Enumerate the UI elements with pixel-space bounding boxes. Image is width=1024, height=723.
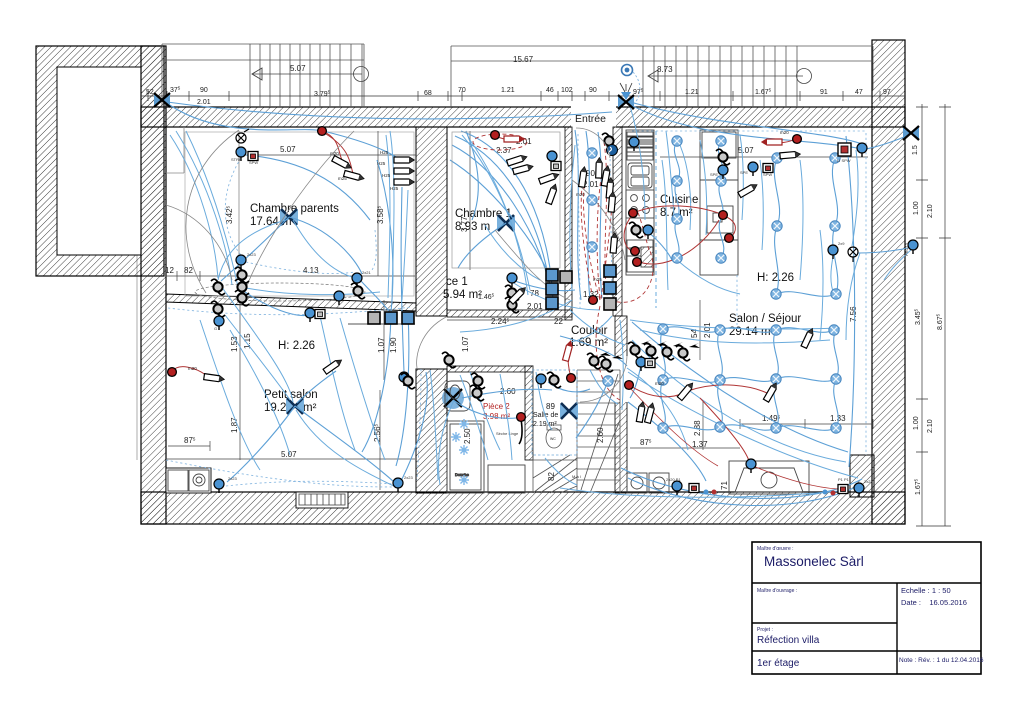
svg-text:2.10: 2.10 <box>927 204 934 218</box>
svg-text:2x23: 2x23 <box>247 252 256 257</box>
svg-text:7.56: 7.56 <box>849 306 858 322</box>
svg-text:m²: m² <box>303 402 317 414</box>
svg-text:G: G <box>214 326 217 331</box>
svg-text:Maître d'œuvre :: Maître d'œuvre : <box>757 546 794 552</box>
svg-text:ce 1: ce 1 <box>446 276 468 288</box>
svg-text:2.01: 2.01 <box>703 322 712 338</box>
svg-text:2x20 P1: 2x20 P1 <box>666 477 681 482</box>
svg-text:m20: m20 <box>330 151 339 156</box>
svg-text:1.00: 1.00 <box>913 201 920 215</box>
svg-text:H25: H25 <box>390 186 399 191</box>
svg-text:90: 90 <box>589 87 597 94</box>
svg-text:19.2: 19.2 <box>264 402 286 414</box>
svg-text:52: 52 <box>146 89 154 96</box>
svg-text:70: 70 <box>458 87 466 94</box>
svg-text:102: 102 <box>561 87 573 94</box>
svg-text:97: 97 <box>883 89 891 96</box>
svg-text:5.94 m²: 5.94 m² <box>443 289 482 301</box>
svg-text:47: 47 <box>855 89 863 96</box>
svg-text:1.21: 1.21 <box>685 89 699 96</box>
svg-text:90: 90 <box>200 87 208 94</box>
svg-text:1.21: 1.21 <box>501 87 515 94</box>
svg-text:1.07: 1.07 <box>377 337 386 353</box>
svg-text:2x9: 2x9 <box>838 241 845 246</box>
svg-text:m25: m25 <box>338 176 347 181</box>
svg-text:91: 91 <box>820 89 828 96</box>
svg-text:12: 12 <box>165 266 174 275</box>
svg-text:1.5: 1.5 <box>912 145 919 155</box>
svg-text:2.19 m²: 2.19 m² <box>533 421 557 428</box>
svg-text:2.60: 2.60 <box>596 427 605 443</box>
svg-text:H: 2.26: H: 2.26 <box>757 272 794 284</box>
svg-text:Sèche Linge: Sèche Linge <box>496 431 519 436</box>
svg-text:Douche: Douche <box>455 472 470 477</box>
svg-text:WC: WC <box>550 437 556 441</box>
svg-text:89: 89 <box>546 402 555 411</box>
svg-text:46: 46 <box>546 87 554 94</box>
svg-text:LI SPW: LI SPW <box>837 158 851 163</box>
svg-text:2x21: 2x21 <box>362 270 371 275</box>
svg-text:2.01: 2.01 <box>527 302 543 311</box>
svg-text:2x23: 2x23 <box>228 476 237 481</box>
svg-text:m25: m25 <box>593 277 602 282</box>
svg-text:M à l: M à l <box>572 474 581 479</box>
svg-text:Salon / Séjour: Salon / Séjour <box>729 313 801 325</box>
svg-text:3.77: 3.77 <box>460 216 469 232</box>
svg-text:Date : 16.05.2016: Date : 16.05.2016 <box>901 598 967 607</box>
svg-text:5.07: 5.07 <box>280 145 296 154</box>
svg-text:m20: m20 <box>655 381 664 386</box>
svg-text:Echelle : 1 : 50: Echelle : 1 : 50 <box>901 586 951 595</box>
svg-text:1.69 m²: 1.69 m² <box>569 337 608 349</box>
svg-text:4.13: 4.13 <box>303 266 319 275</box>
svg-text:H25: H25 <box>382 173 391 178</box>
svg-text:1er étage: 1er étage <box>757 658 800 669</box>
svg-text:82: 82 <box>547 472 556 481</box>
svg-text:PRC13: PRC13 <box>904 242 909 256</box>
svg-text:H25: H25 <box>380 150 389 155</box>
svg-text:8.73: 8.73 <box>657 65 673 74</box>
svg-text:1.00: 1.00 <box>913 416 920 430</box>
svg-text:1.15: 1.15 <box>243 333 252 349</box>
svg-text:5.07: 5.07 <box>738 146 754 155</box>
svg-text:68: 68 <box>424 90 432 97</box>
svg-text:2.50: 2.50 <box>463 428 472 444</box>
svg-text:Salle de b: Salle de b <box>533 412 564 419</box>
svg-text:H25: H25 <box>377 161 386 166</box>
svg-text:Note : Rév. : 1 du 12.04.2016: Note : Rév. : 1 du 12.04.2016 <box>899 657 984 664</box>
svg-text:SPW: SPW <box>763 172 772 177</box>
svg-text:Entrée: Entrée <box>575 113 606 125</box>
svg-text:Massonelec Sàrl: Massonelec Sàrl <box>764 554 864 569</box>
svg-text:1.90: 1.90 <box>389 337 398 353</box>
svg-text:2x23: 2x23 <box>864 479 873 484</box>
svg-text:SPE: SPE <box>740 170 748 175</box>
svg-text:Maître d'ouvrage :: Maître d'ouvrage : <box>757 588 797 594</box>
svg-text:STRE: STRE <box>231 157 242 162</box>
svg-text:SPE: SPE <box>710 172 718 177</box>
svg-text:15.67: 15.67 <box>513 55 534 64</box>
svg-text:SPW: SPW <box>249 160 258 165</box>
svg-text:2.01: 2.01 <box>197 99 211 106</box>
svg-text:m20: m20 <box>188 366 197 371</box>
svg-text:2x23: 2x23 <box>404 475 413 480</box>
svg-text:P1 P1: P1 P1 <box>838 477 850 482</box>
svg-text:2.10: 2.10 <box>927 419 934 433</box>
svg-text:5.07: 5.07 <box>290 64 306 73</box>
svg-text:1.07: 1.07 <box>461 336 470 352</box>
svg-text:m20: m20 <box>780 130 789 135</box>
svg-text:22: 22 <box>554 317 563 326</box>
svg-text:90: 90 <box>586 169 595 178</box>
svg-text:Réfection villa: Réfection villa <box>757 635 820 646</box>
svg-text:Projet :: Projet : <box>757 627 773 633</box>
svg-text:82: 82 <box>184 266 193 275</box>
svg-text:71: 71 <box>720 481 729 490</box>
svg-text:1.37: 1.37 <box>692 440 708 449</box>
svg-text:H: 2.26: H: 2.26 <box>278 340 315 352</box>
svg-text:m20: m20 <box>576 192 585 197</box>
